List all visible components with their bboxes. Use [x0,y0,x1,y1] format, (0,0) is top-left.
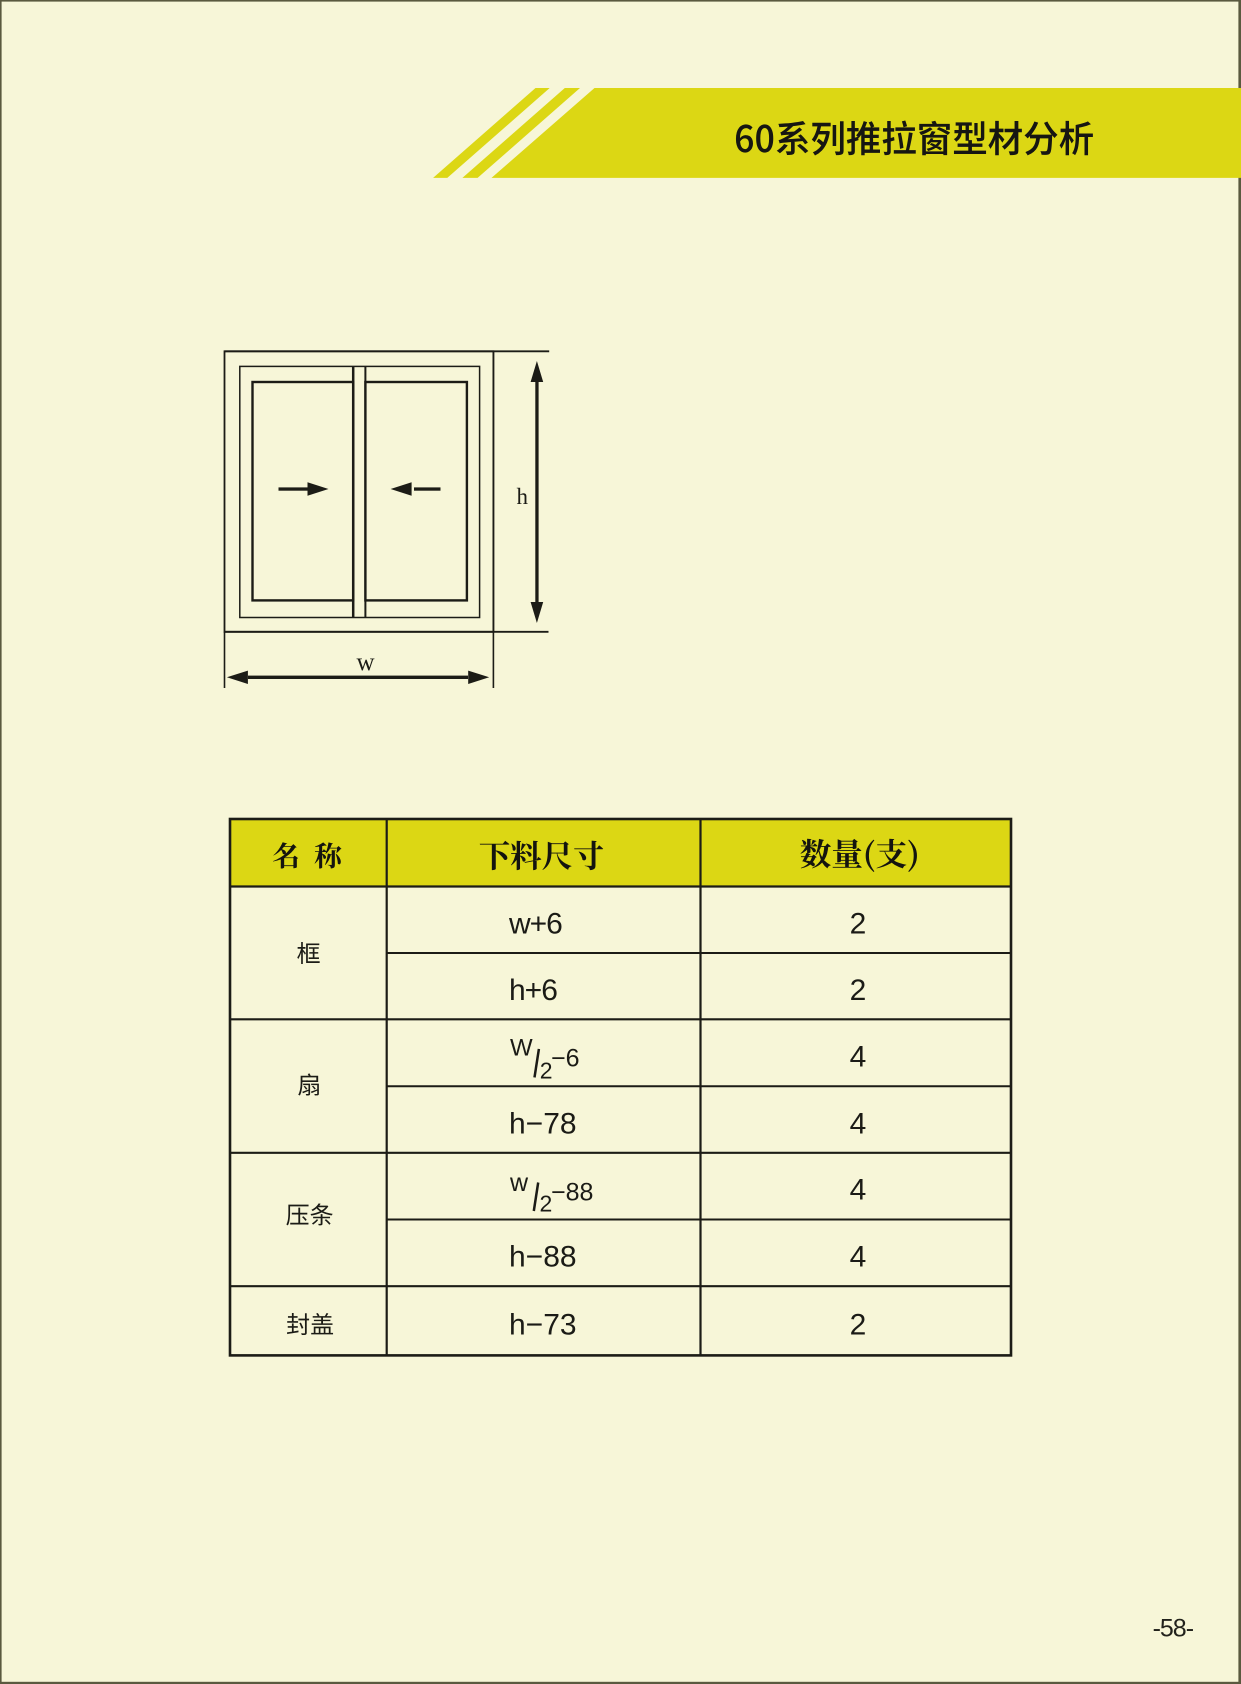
svg-text:2: 2 [850,908,867,941]
svg-text:h−78: h−78 [509,1107,577,1140]
svg-text:−88: −88 [551,1179,593,1207]
svg-text:2: 2 [850,974,867,1007]
svg-text:4: 4 [850,1241,867,1274]
svg-text:4: 4 [850,1040,867,1073]
svg-text:2: 2 [850,1309,867,1342]
svg-text:4: 4 [850,1174,867,1207]
svg-text:w: w [509,1169,529,1197]
svg-text:h: h [517,484,529,509]
svg-text:4: 4 [850,1107,867,1140]
svg-text:h−73: h−73 [509,1309,577,1342]
svg-text:-58-: -58- [1153,1615,1194,1643]
svg-text:h−88: h−88 [509,1241,577,1274]
svg-text:−6: −6 [551,1044,580,1072]
svg-text:W: W [510,1035,533,1062]
svg-text:h+6: h+6 [509,974,557,1007]
svg-text:w: w [357,649,375,676]
svg-text:w+6: w+6 [508,908,562,941]
